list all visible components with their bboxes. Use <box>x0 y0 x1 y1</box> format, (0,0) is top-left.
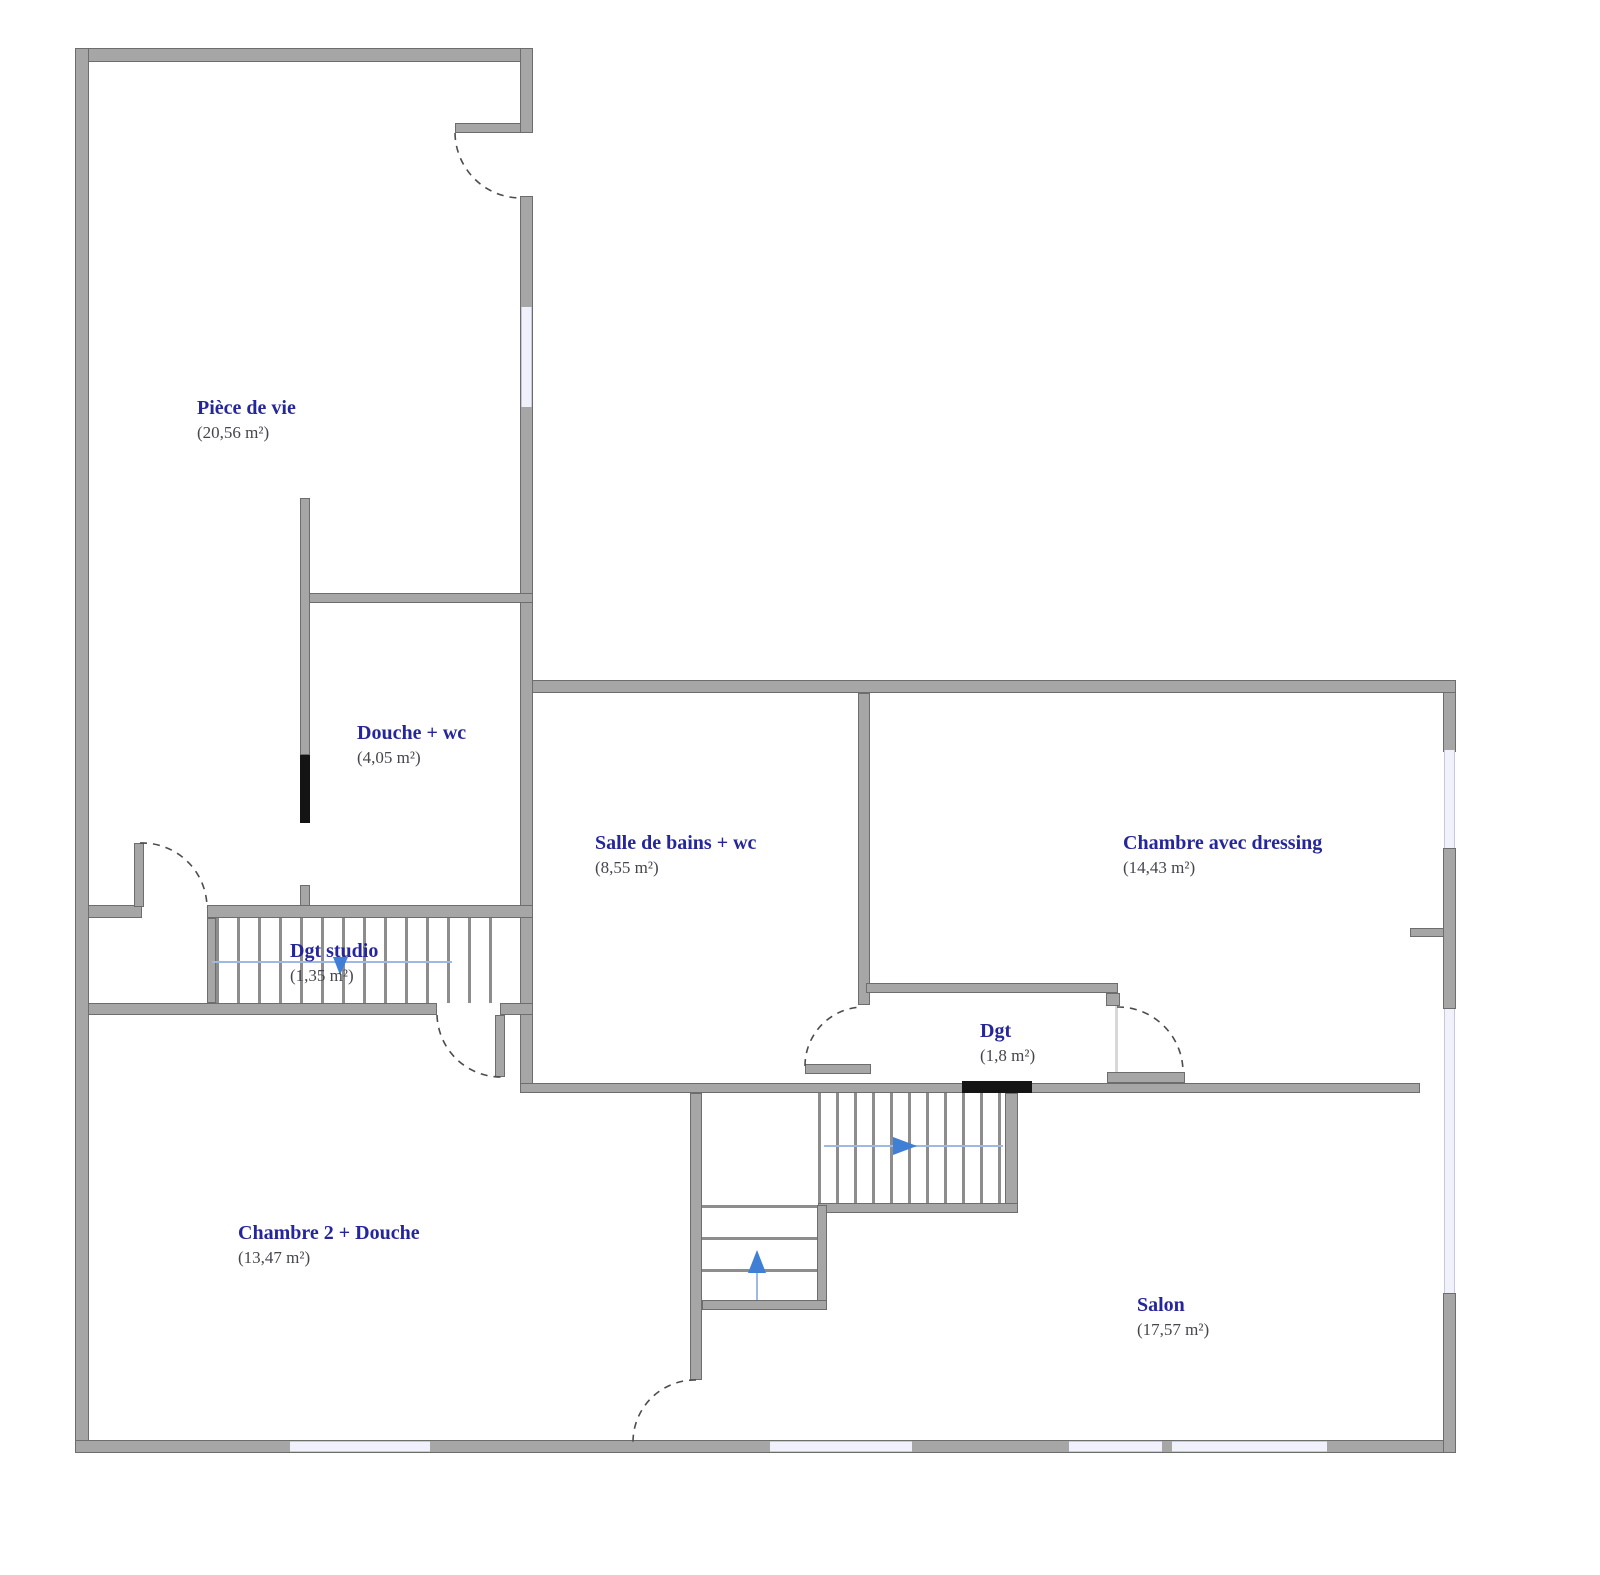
annotation-layer <box>0 0 1600 1575</box>
door-arc-ch2-north <box>437 1015 503 1077</box>
room-label-salle-de-bains: Salle de bains + wc (8,55 m²) <box>595 830 756 880</box>
door-leaf-corridor-east <box>1115 1006 1118 1072</box>
wall-salon-west <box>690 1093 702 1380</box>
door-arc-corridor-west <box>805 1007 862 1066</box>
window-bottom-1 <box>290 1441 430 1452</box>
room-label-dgt-studio: Dgt studio (1,35 m²) <box>290 938 378 988</box>
window-bottom-4 <box>1172 1441 1327 1452</box>
stair-lower-south <box>702 1300 827 1310</box>
wall-ch2-north-1 <box>88 1003 437 1015</box>
room-name: Salle de bains + wc <box>595 830 756 857</box>
wall-douche-west-black <box>300 755 310 823</box>
room-name: Chambre avec dressing <box>1123 830 1322 857</box>
room-area: (13,47 m²) <box>238 1247 420 1270</box>
window-bottom-2 <box>770 1441 912 1452</box>
room-label-chambre-dressing: Chambre avec dressing (14,43 m²) <box>1123 830 1322 880</box>
wall-ch2-north-2 <box>500 1003 533 1015</box>
stair-central-south <box>818 1203 1018 1213</box>
door-arc-ch2-south <box>633 1380 696 1442</box>
wall-corridor-top <box>866 983 1118 993</box>
door-arc-entry <box>455 133 521 198</box>
room-name: Chambre 2 + Douche <box>238 1220 420 1247</box>
wall-corridor-stub <box>1107 1072 1185 1083</box>
window-bottom-3 <box>1069 1441 1162 1452</box>
room-label-douche-wc: Douche + wc (4,05 m²) <box>357 720 466 770</box>
door-arc-pdv <box>140 843 207 908</box>
wall-right-outer-3 <box>1443 1293 1456 1453</box>
wall-pdv-south-2 <box>207 905 533 918</box>
door-leaf-ch2-north <box>495 1015 505 1077</box>
room-label-salon: Salon (17,57 m²) <box>1137 1292 1209 1342</box>
wall-black-landing <box>962 1081 1032 1093</box>
room-name: Dgt <box>980 1018 1035 1045</box>
room-area: (20,56 m²) <box>197 422 296 445</box>
staircase-central-upper <box>818 1093 1008 1203</box>
wall-left-outer <box>75 48 89 1453</box>
room-area: (17,57 m²) <box>1137 1319 1209 1342</box>
wall-douche-top <box>300 593 533 603</box>
room-name: Douche + wc <box>357 720 466 747</box>
room-area: (4,05 m²) <box>357 747 466 770</box>
room-area: (8,55 m²) <box>595 857 756 880</box>
wall-east-pdv-upper <box>520 48 533 133</box>
staircase-central-lower <box>702 1205 817 1300</box>
door-leaf-pdv <box>134 843 144 907</box>
door-arc-corridor-east <box>1117 1007 1183 1072</box>
stair-central-east <box>1005 1093 1018 1213</box>
room-area: (1,8 m²) <box>980 1045 1035 1068</box>
door-leaf-corridor-west <box>805 1064 871 1074</box>
wall-douche-west-1 <box>300 498 310 755</box>
wall-douche-west-2 <box>300 885 310 907</box>
room-label-dgt: Dgt (1,8 m²) <box>980 1018 1035 1068</box>
wall-top-right-block <box>520 680 1456 693</box>
wall-sdb-chambre-divider <box>858 693 870 1005</box>
room-label-chambre-2: Chambre 2 + Douche (13,47 m²) <box>238 1220 420 1270</box>
window-right-lower <box>1444 1009 1455 1293</box>
floor-plan: Pièce de vie (20,56 m²) Douche + wc (4,0… <box>0 0 1600 1575</box>
wall-top-outer <box>75 48 533 62</box>
window-right-upper <box>1444 750 1455 848</box>
wall-right-outer-2 <box>1443 848 1456 1009</box>
door-leaf-entry <box>455 123 521 133</box>
room-name: Salon <box>1137 1292 1209 1319</box>
wall-corridor-jamb <box>1106 993 1120 1006</box>
room-label-piece-de-vie: Pièce de vie (20,56 m²) <box>197 395 296 445</box>
room-name: Pièce de vie <box>197 395 296 422</box>
room-name: Dgt studio <box>290 938 378 965</box>
room-area: (1,35 m²) <box>290 965 378 988</box>
window-east-pdv <box>521 307 532 407</box>
stair-lower-east <box>817 1205 827 1310</box>
stair-studio-edge <box>207 918 216 1003</box>
room-area: (14,43 m²) <box>1123 857 1322 880</box>
wall-right-return-tick <box>1410 928 1444 937</box>
